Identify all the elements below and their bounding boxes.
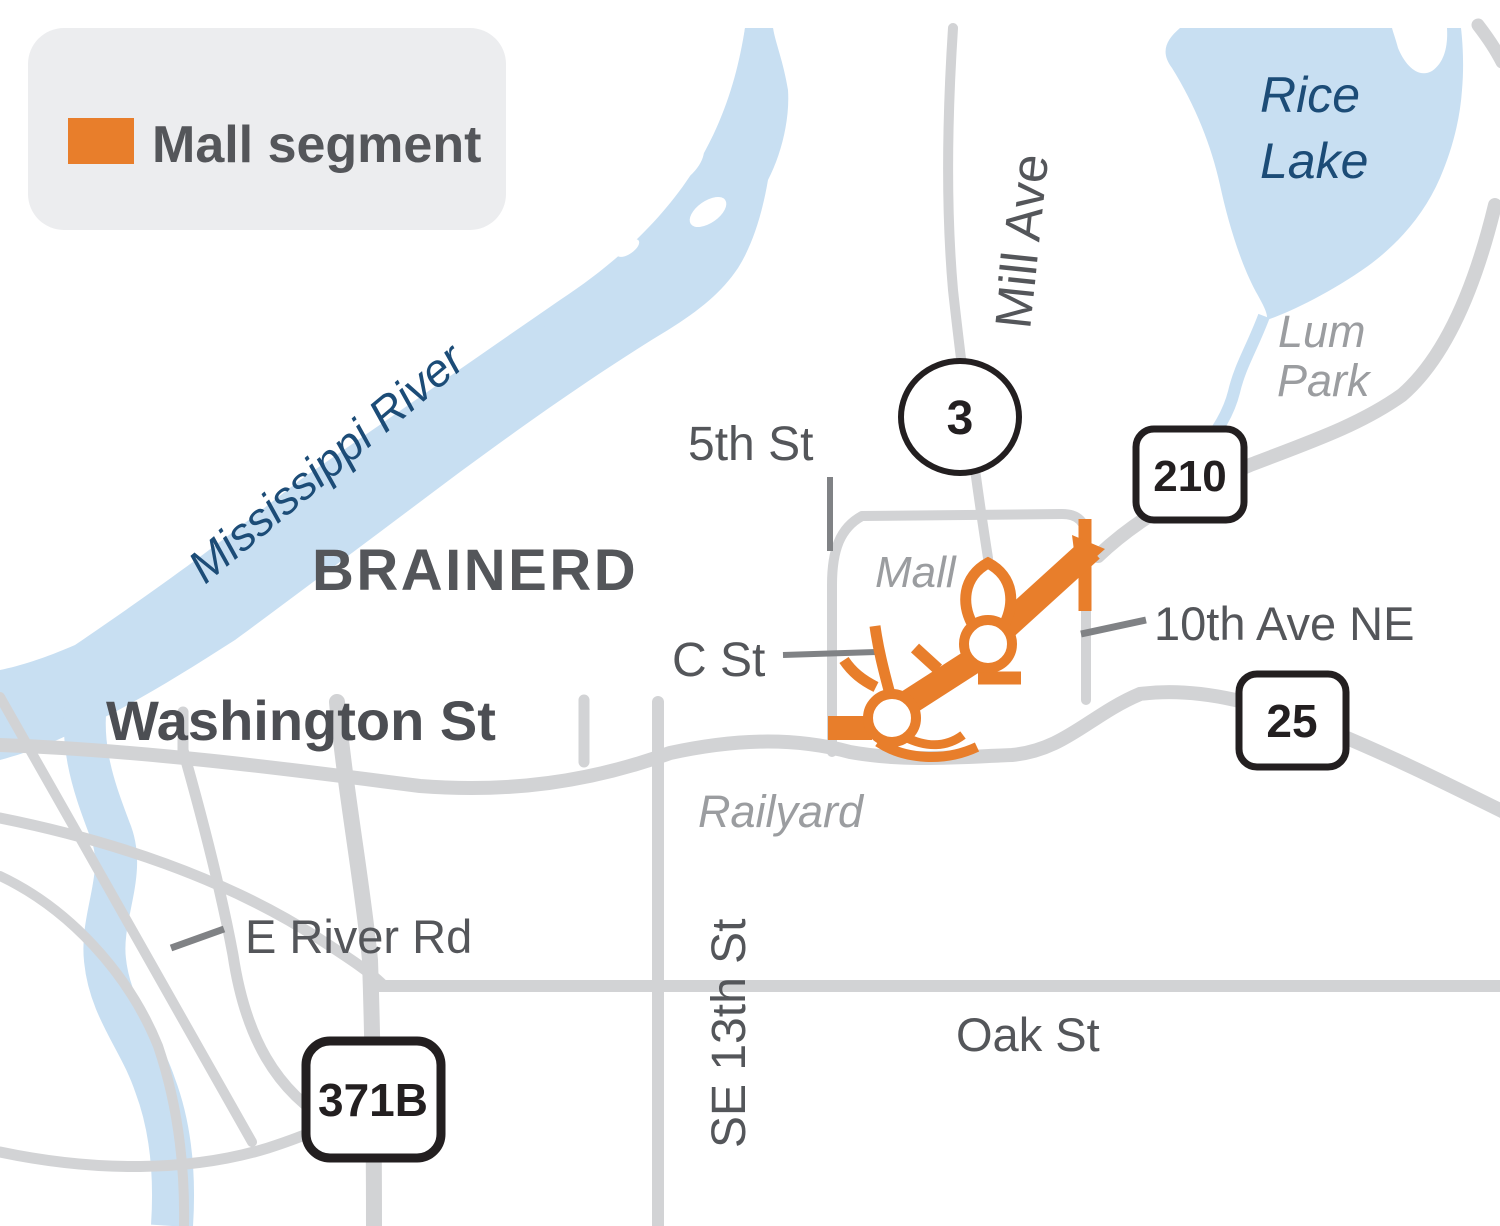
legend: Mall segment [28, 28, 506, 230]
brainerd-mall-map: 3 210 25 371B BRAINERD Mississippi River… [0, 0, 1500, 1226]
c-st-label: C St [672, 634, 765, 687]
oak-st-label: Oak St [956, 1008, 1100, 1061]
roundabout [868, 694, 916, 742]
rice-lake-label-line2: Lake [1260, 133, 1368, 189]
fifth-st-label: 5th St [688, 418, 813, 471]
washington-st-label: Washington St [106, 689, 496, 752]
c-st-leader [783, 652, 876, 655]
route-371b-label: 371B [318, 1074, 428, 1126]
city-label: BRAINERD [312, 538, 638, 603]
mall-segment-spine [1003, 549, 1091, 629]
se-13th-st-label: SE 13th St [703, 919, 756, 1148]
mall-segment-stub [915, 648, 938, 669]
railyard-label: Railyard [698, 786, 865, 837]
e-river-rd-label: E River Rd [245, 910, 472, 963]
mall-area-label: Mall [875, 548, 957, 597]
route-25-label: 25 [1266, 695, 1317, 747]
route-3-label: 3 [947, 392, 974, 445]
route-shields: 3 210 25 371B [306, 361, 1346, 1158]
mall-segment-highlight [828, 519, 1105, 757]
mill-ave-label: Mill Ave [984, 151, 1059, 331]
mall-segment-c-branch [844, 660, 876, 687]
lum-park-label-line2: Park [1277, 355, 1372, 406]
route-210-label: 210 [1153, 452, 1226, 501]
highway-210-road-corner [1478, 25, 1500, 62]
tenth-ave-ne-label: 10th Ave NE [1154, 597, 1414, 650]
legend-swatch [68, 118, 134, 164]
legend-label: Mall segment [152, 116, 481, 174]
rice-lake-label-line1: Rice [1260, 67, 1360, 123]
e-river-rd-leader [171, 929, 224, 948]
lum-park-label-line1: Lum [1278, 306, 1366, 357]
mill-ave-road [948, 28, 988, 558]
roundabout [964, 620, 1012, 668]
